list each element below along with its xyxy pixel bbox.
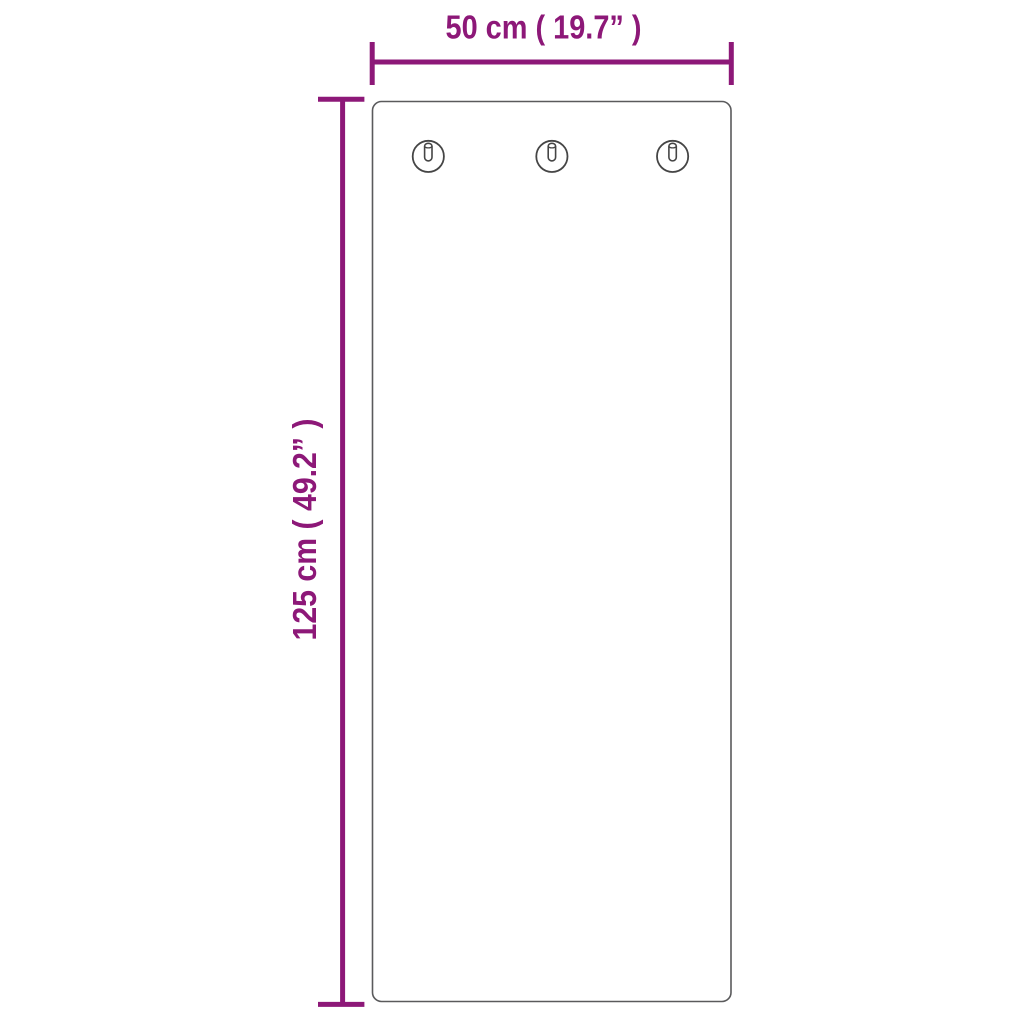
svg-text:125 cm ( 49.2” ): 125 cm ( 49.2” )	[287, 419, 324, 641]
svg-text:50 cm ( 19.7” ): 50 cm ( 19.7” )	[446, 10, 642, 47]
